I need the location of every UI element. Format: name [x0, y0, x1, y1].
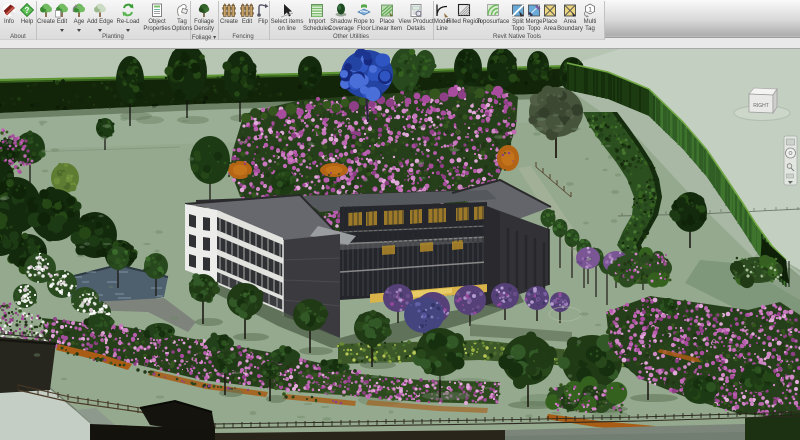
svg-text:?: ? [25, 6, 30, 15]
svg-text:1: 1 [588, 7, 592, 14]
